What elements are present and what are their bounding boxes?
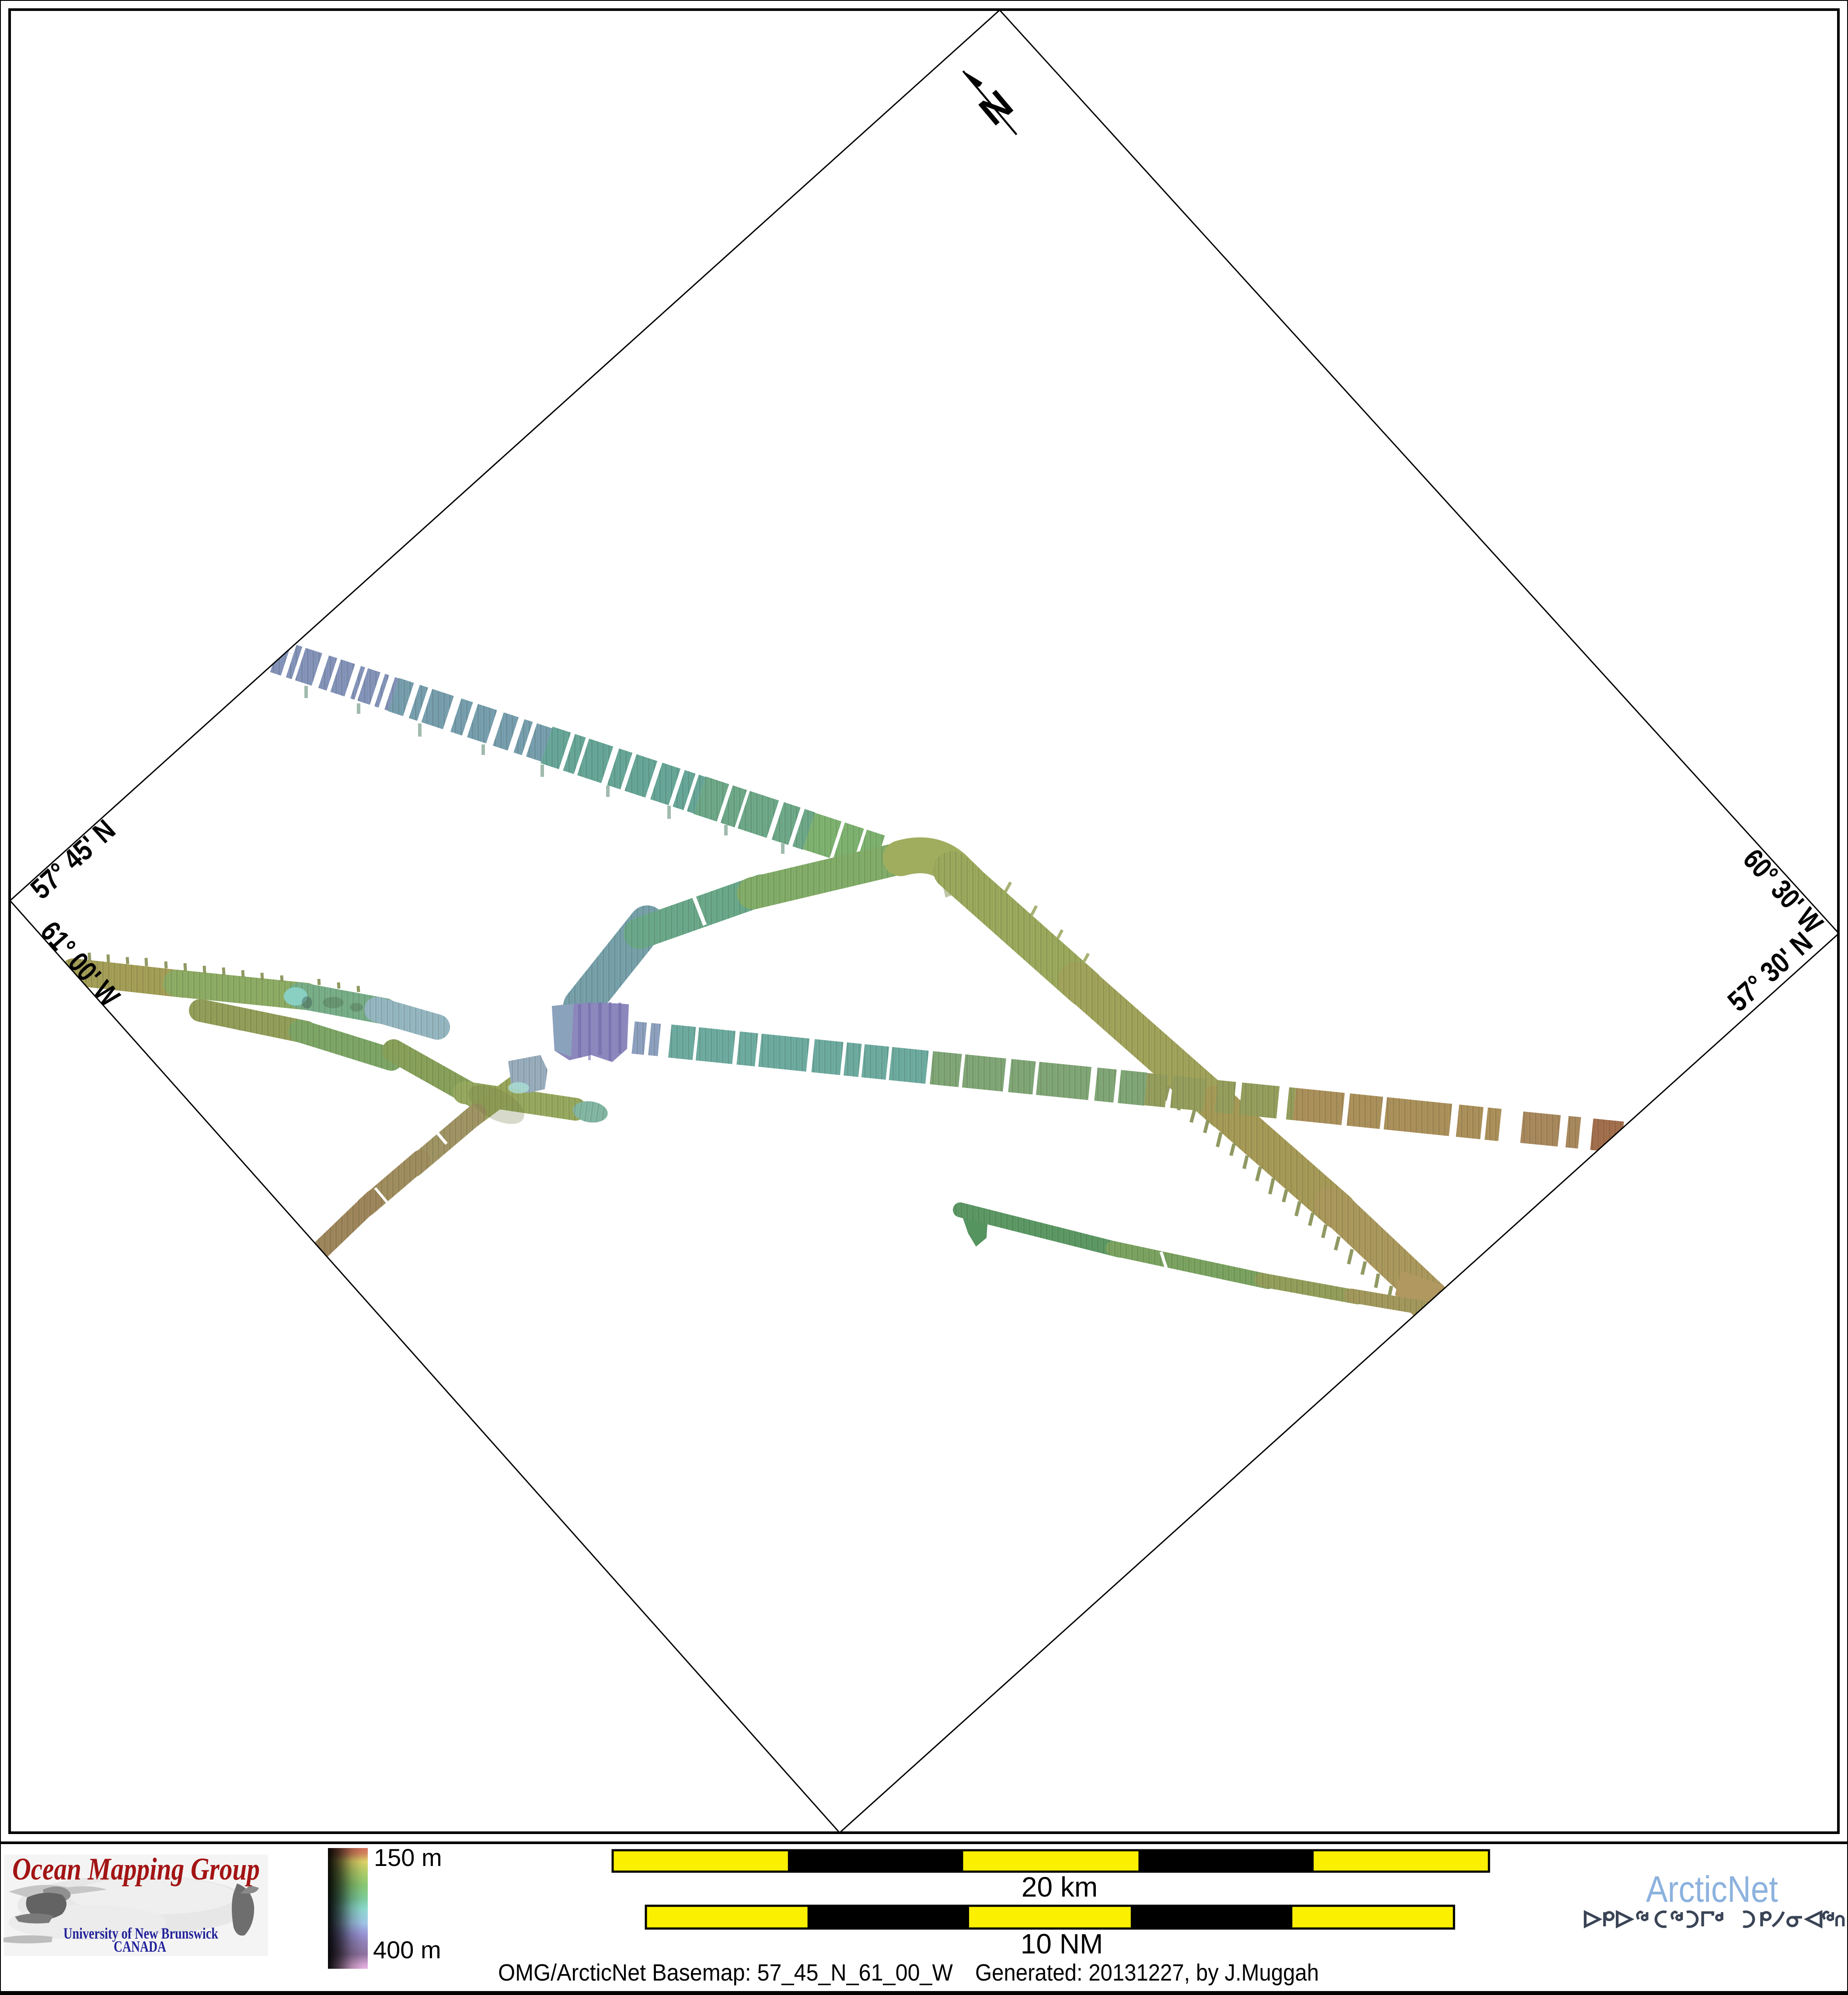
svg-text:Ocean Mapping Group: Ocean Mapping Group xyxy=(12,1852,260,1887)
svg-text:CANADA: CANADA xyxy=(114,1938,166,1955)
svg-text:10 NM: 10 NM xyxy=(1021,1928,1103,1960)
svg-text:20 km: 20 km xyxy=(1022,1871,1098,1903)
svg-text:150 m: 150 m xyxy=(374,1844,442,1871)
svg-text:OMG/ArcticNet Basemap: 57_45_N: OMG/ArcticNet Basemap: 57_45_N_61_00_W xyxy=(498,1960,953,1986)
svg-text:ArcticNet: ArcticNet xyxy=(1646,1869,1778,1910)
svg-text:400 m: 400 m xyxy=(373,1936,441,1964)
svg-text:Generated: 20131227, by J.Mugg: Generated: 20131227, by J.Muggah xyxy=(975,1960,1319,1986)
